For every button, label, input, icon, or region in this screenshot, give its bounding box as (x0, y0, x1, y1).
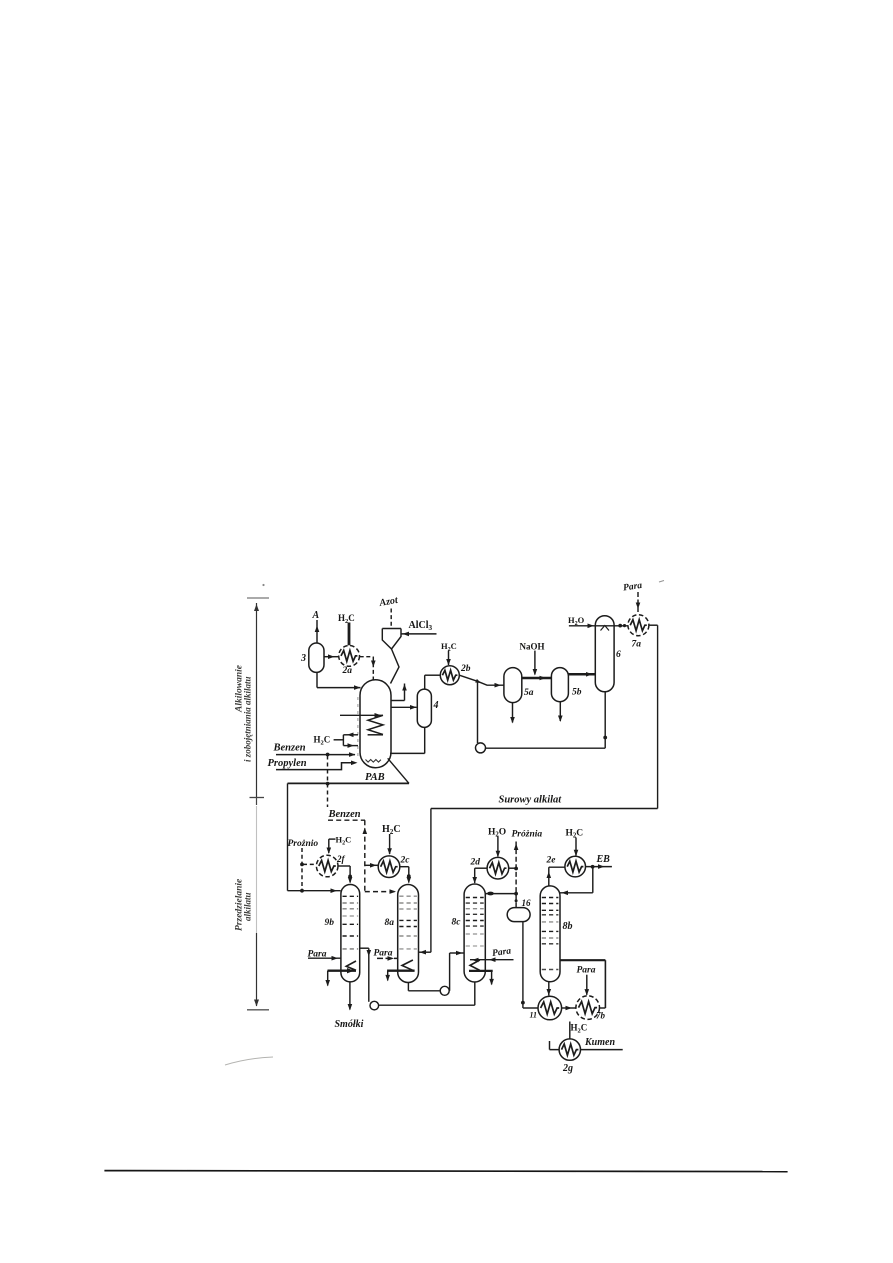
svg-text:4: 4 (433, 700, 439, 711)
svg-text:2f: 2f (336, 854, 346, 864)
svg-text:11: 11 (530, 1011, 538, 1020)
svg-text:16: 16 (522, 898, 532, 908)
svg-text:alkilatu: alkilatu (243, 892, 253, 921)
svg-text:Benzen: Benzen (328, 809, 361, 820)
svg-text:Benzen: Benzen (273, 743, 306, 754)
svg-text:Prożnio: Prożnio (288, 839, 319, 849)
svg-text:8a: 8a (385, 918, 395, 928)
svg-text:2d: 2d (470, 858, 481, 868)
svg-text:2c: 2c (400, 856, 411, 866)
svg-text:Surowy alkilat: Surowy alkilat (499, 795, 563, 806)
svg-text:9b: 9b (325, 918, 335, 928)
svg-text:7a: 7a (632, 640, 642, 650)
svg-text:A: A (312, 610, 320, 621)
svg-text:7b: 7b (596, 1011, 606, 1021)
svg-text:3: 3 (300, 653, 306, 664)
svg-text:Propylen: Propylen (268, 758, 307, 769)
svg-text:5b: 5b (572, 688, 582, 698)
svg-text:Smółki: Smółki (335, 1019, 364, 1030)
svg-text:2e: 2e (546, 856, 557, 866)
svg-text:Para: Para (577, 966, 596, 976)
svg-text:PAB: PAB (365, 772, 385, 783)
svg-text:2b: 2b (460, 664, 471, 674)
svg-text:2g: 2g (562, 1063, 573, 1074)
svg-text:6: 6 (616, 650, 621, 660)
svg-text:i zobojętniania alkilatu: i zobojętniania alkilatu (243, 676, 253, 762)
svg-text:EB: EB (596, 854, 611, 865)
svg-text:8b: 8b (563, 921, 573, 932)
svg-text:5a: 5a (524, 688, 534, 698)
svg-text:2a: 2a (342, 666, 353, 676)
svg-text:NaOH: NaOH (520, 642, 545, 652)
svg-text:Kumen: Kumen (584, 1037, 615, 1048)
svg-text:Próżnia: Próżnia (512, 830, 543, 840)
svg-text:8c: 8c (452, 918, 462, 928)
